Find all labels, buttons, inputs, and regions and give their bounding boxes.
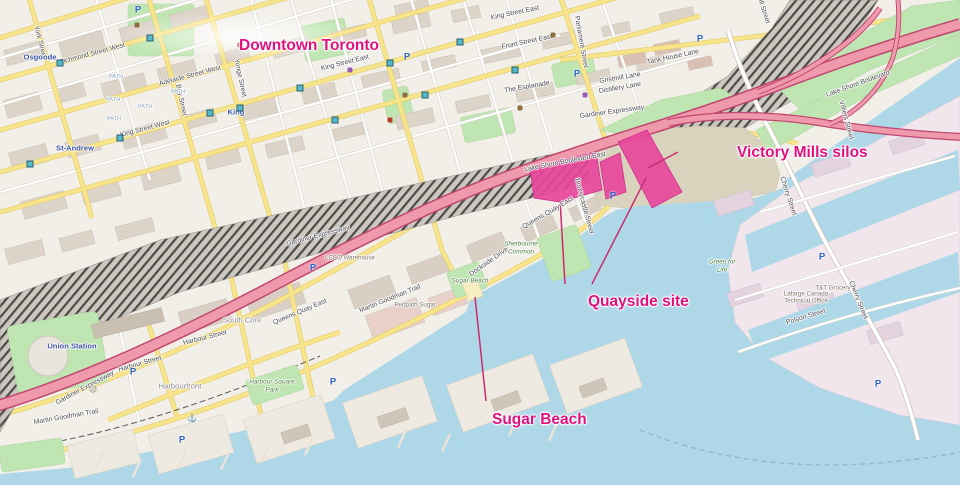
map-base-layer [0, 0, 960, 485]
stadium-dome [28, 336, 68, 376]
annotation-glow [119, 12, 359, 60]
cn-tower [90, 386, 96, 392]
map-canvas[interactable]: Richmond Street WestAdelaide Street West… [0, 0, 960, 485]
